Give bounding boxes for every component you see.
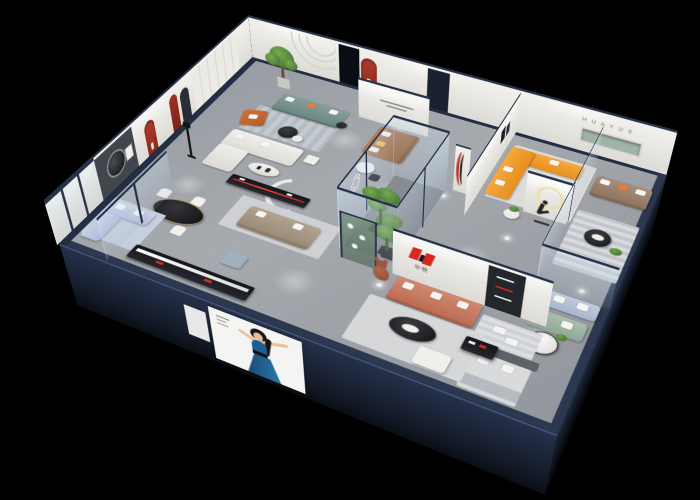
pillow — [617, 184, 629, 191]
pillow — [402, 281, 416, 290]
pillow — [494, 179, 506, 186]
white-side-table — [303, 154, 321, 165]
red-product — [203, 279, 212, 284]
shelf — [495, 285, 512, 292]
pillow — [306, 103, 317, 109]
blue-gray-ottoman — [219, 250, 249, 269]
bed-headboard — [470, 340, 540, 372]
pillow — [456, 300, 470, 310]
product — [468, 340, 476, 345]
black-shelf-unit — [460, 336, 499, 361]
display-papers — [504, 337, 519, 347]
pillow — [502, 166, 514, 173]
small-round-table — [501, 207, 521, 221]
pillow — [429, 291, 443, 300]
display-bed — [456, 350, 532, 407]
white-ottoman — [411, 346, 453, 374]
pillow — [255, 210, 268, 218]
pillow — [248, 114, 258, 119]
vase — [151, 142, 154, 151]
pillow — [576, 302, 589, 312]
taupe-sofa — [588, 175, 653, 211]
downlight-dot — [494, 339, 501, 345]
shelf — [494, 295, 511, 302]
white-tray — [400, 322, 420, 334]
white-display-panel — [183, 304, 210, 342]
vase — [264, 168, 272, 173]
downlight-dot — [376, 282, 383, 287]
pillow — [635, 189, 647, 196]
red-product — [479, 344, 487, 349]
pillow — [553, 294, 566, 303]
round-white-black-table — [522, 327, 562, 359]
pillow — [560, 320, 574, 330]
red-product — [155, 260, 164, 265]
display-papers — [492, 325, 507, 335]
pillow — [476, 355, 490, 366]
pillow — [328, 109, 339, 115]
black-oval-coffee-table — [384, 312, 441, 347]
pillow — [284, 96, 295, 102]
pillow — [548, 159, 560, 166]
pillow — [260, 141, 272, 148]
pillow — [599, 179, 611, 186]
light-pool — [254, 255, 334, 310]
plant — [608, 247, 623, 258]
dining-chair — [169, 224, 188, 236]
white-tray — [591, 233, 605, 242]
framed-art — [124, 143, 134, 162]
black-round-table — [581, 226, 614, 250]
downlight-dot — [504, 236, 511, 241]
huayue-logo-icon: 华悦 — [408, 246, 435, 277]
white-oval-table — [245, 160, 283, 179]
apartment-cutaway: H U A Y U E — [59, 56, 667, 435]
plant — [554, 333, 568, 343]
pillow — [500, 364, 514, 375]
pillow — [234, 133, 246, 140]
brown-fabric-sofa — [235, 205, 322, 250]
poster-caption-line — [217, 322, 228, 328]
shelf — [497, 276, 515, 283]
showroom-render: H U A Y U E — [0, 0, 700, 500]
pillow — [292, 223, 305, 231]
vase — [256, 166, 262, 170]
